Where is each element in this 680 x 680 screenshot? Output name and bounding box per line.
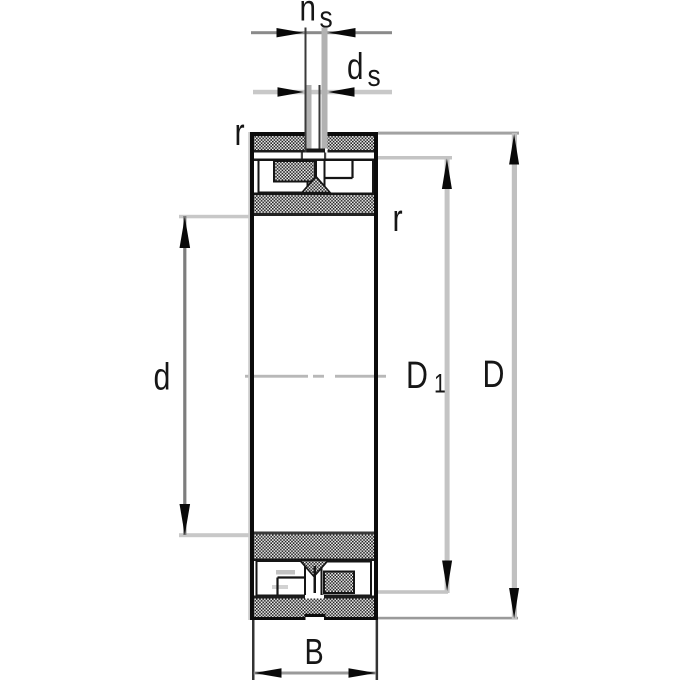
- svg-text:1: 1: [434, 369, 446, 399]
- svg-text:s: s: [368, 59, 381, 93]
- svg-text:n: n: [300, 0, 316, 29]
- svg-text:D: D: [406, 355, 428, 397]
- svg-text:d: d: [347, 47, 363, 88]
- svg-text:D: D: [483, 354, 505, 396]
- svg-text:B: B: [305, 631, 324, 672]
- svg-text:r: r: [393, 198, 403, 240]
- svg-text:d: d: [154, 356, 171, 398]
- svg-text:r: r: [235, 112, 245, 154]
